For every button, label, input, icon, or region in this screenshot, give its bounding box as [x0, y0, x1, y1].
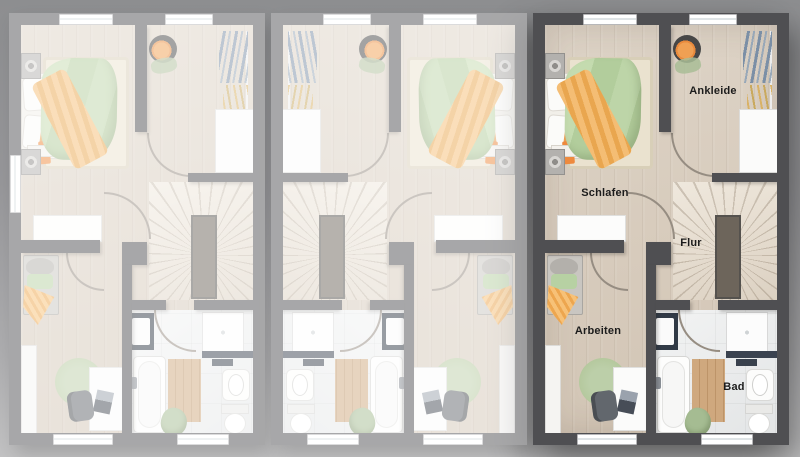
ball-chair [149, 35, 177, 63]
toilet-bowl [748, 413, 770, 433]
floorplan-canvas: Schlafen Ankleide Flur Arbeiten Bad [0, 0, 800, 457]
wall-bad-top-left [656, 300, 690, 310]
shower [202, 312, 244, 353]
unit-inner: Schlafen Ankleide Flur Arbeiten Bad [533, 13, 789, 445]
single-bed [477, 255, 513, 315]
wall-schlafen-arbeiten [545, 240, 624, 253]
door-arc-bad [154, 310, 196, 352]
bedroom-rug [407, 57, 493, 169]
unit-right[interactable]: Schlafen Ankleide Flur Arbeiten Bad [533, 13, 789, 445]
door-arc-arbeiten [590, 253, 628, 291]
hanging-clothes-yellow [288, 85, 313, 133]
single-bed-pillow [550, 258, 578, 275]
wall-bad-top-right [718, 300, 777, 310]
hand-basin [286, 369, 314, 401]
shower [726, 312, 768, 353]
single-bed-green-pillow [551, 274, 577, 289]
wall-schlafen-ankleide [659, 25, 671, 132]
nightstand [21, 53, 41, 79]
stairwell-opening [191, 215, 217, 299]
single-bed-pillow [482, 258, 510, 275]
wall-schlafen-arbeiten [21, 240, 100, 253]
orange-cushion [39, 84, 54, 112]
towel-shelf [212, 359, 233, 366]
towel-shelf [303, 359, 324, 366]
shower-glass-panel [726, 351, 777, 358]
wall-hall-stub [646, 242, 671, 265]
door-arc-arbeiten [66, 253, 104, 291]
workroom-sideboard [545, 345, 561, 433]
vanity-sink [656, 318, 674, 345]
round-green-rug [433, 358, 481, 406]
wall-schlafen-arbeiten [436, 240, 515, 253]
double-bed-mattress [21, 73, 61, 159]
window [53, 434, 113, 445]
room-label-arbeiten: Arbeiten [575, 325, 621, 337]
round-green-rug [55, 358, 103, 406]
window [689, 14, 737, 25]
door-arc-schlafen [104, 192, 151, 239]
wardrobe-cabinet [739, 109, 777, 173]
nightstand [495, 53, 515, 79]
stairwell-opening [715, 215, 741, 299]
bedroom-sideboard [434, 215, 503, 242]
bed-pillow [490, 114, 515, 150]
laptop-icon [422, 389, 443, 414]
door-arc-schlafen [385, 192, 432, 239]
toilet-bowl [290, 413, 312, 433]
bathtub-faucet [131, 377, 137, 389]
vanity-sink [132, 318, 150, 345]
bed-footboard [479, 145, 509, 157]
window [423, 14, 477, 25]
room-label-schlafen: Schlafen [581, 187, 628, 199]
orange-cushion [483, 84, 498, 112]
wall-bad-top-right [194, 300, 253, 310]
single-bed [23, 255, 59, 315]
window [165, 14, 213, 25]
towel-shelf [736, 359, 757, 366]
unit-interior [283, 25, 515, 433]
unit-middle[interactable] [271, 13, 527, 445]
unit-interior [21, 25, 253, 433]
bathroom-tile-floor [132, 310, 253, 433]
toilet-bowl [224, 413, 246, 433]
bathroom-tile-floor [283, 310, 404, 433]
desk-chair [66, 389, 95, 422]
stairwell-opening [319, 215, 345, 299]
room-label-flur: Flur [680, 237, 702, 249]
unit-inner [271, 13, 527, 445]
door-arc-bad [340, 310, 382, 352]
orange-accent-cushion [485, 141, 498, 165]
vanity-sink [386, 318, 404, 345]
winder-staircase [283, 182, 387, 300]
desk [411, 367, 447, 431]
bed-pillow [22, 76, 46, 111]
hanging-clothes-blue [288, 31, 317, 83]
shower [292, 312, 334, 353]
shower-glass-panel [202, 351, 253, 358]
hanging-clothes-yellow [223, 85, 248, 133]
unit-inner [9, 13, 265, 445]
window [423, 434, 483, 445]
green-towel [345, 404, 379, 433]
washbasin-vanity [128, 313, 154, 350]
workroom-sideboard [21, 345, 37, 433]
hand-basin [746, 369, 774, 401]
unit-interior: Schlafen Ankleide Flur Arbeiten Bad [545, 25, 777, 433]
bed-pillow [490, 76, 514, 111]
window [323, 14, 371, 25]
wall-schlafen-ankleide [135, 25, 147, 132]
ball-chair [359, 35, 387, 63]
window [701, 434, 753, 445]
bed-pillow [22, 114, 47, 150]
bedroom-rug [43, 57, 129, 169]
wardrobe-cabinet [283, 109, 321, 173]
room-label-bad: Bad [723, 381, 744, 393]
single-bed-pillow [26, 258, 54, 275]
wall-schlafen-ankleide [389, 25, 401, 132]
window [583, 14, 637, 25]
bedroom-sideboard [33, 215, 102, 242]
orange-throw-blanket [427, 68, 506, 171]
window [177, 434, 229, 445]
window [307, 434, 359, 445]
shower-glass-panel [283, 351, 334, 358]
workroom-sideboard [499, 345, 515, 433]
door-arc-ankleide [671, 133, 715, 177]
wooden-bath-mat [335, 359, 368, 422]
winder-staircase [149, 182, 253, 300]
door-arc-schlafen [628, 192, 675, 239]
window [10, 155, 21, 213]
hanging-clothes-blue [743, 31, 772, 83]
room-label-ankleide: Ankleide [689, 85, 736, 97]
double-bed-mattress [475, 73, 515, 159]
wall-ankleide-stairs [188, 173, 253, 182]
wooden-bath-mat [168, 359, 201, 422]
orange-cushion [39, 118, 52, 144]
hanging-clothes-blue [219, 31, 248, 83]
door-arc-ankleide [147, 133, 191, 177]
nightstand [545, 149, 565, 175]
hand-basin [222, 369, 250, 401]
toilet-tank [221, 404, 249, 414]
chair-mat [150, 56, 178, 75]
desk [89, 367, 125, 431]
orange-throw-blanket [31, 68, 110, 171]
washbasin-vanity [382, 313, 408, 350]
single-bed-orange-blanket [23, 285, 56, 325]
clothes-rail [288, 31, 290, 137]
chair-mat [358, 56, 386, 75]
green-duvet [418, 57, 496, 160]
orange-cushion [483, 118, 496, 144]
green-towel [157, 404, 191, 433]
window [59, 14, 113, 25]
wall-ankleide-stairs [283, 173, 348, 182]
desk-chair [590, 389, 619, 422]
wall-ankleide-stairs [712, 173, 777, 182]
wardrobe-cabinet [215, 109, 253, 173]
unit-left[interactable] [9, 13, 265, 445]
green-duvet [40, 57, 118, 160]
clothes-rail [246, 31, 248, 137]
door-arc-ankleide [345, 133, 389, 177]
laptop-icon [93, 389, 114, 414]
single-bed-orange-blanket [480, 285, 513, 325]
wall-bad-top-left [370, 300, 404, 310]
bathtub-faucet [399, 377, 405, 389]
bathtub [370, 356, 403, 433]
nightstand [495, 149, 515, 175]
wall-hall-stub [389, 242, 414, 265]
bed-footboard [27, 145, 57, 157]
wall-arbeiten-bad [122, 265, 132, 433]
door-arc-arbeiten [432, 253, 470, 291]
desk-chair [441, 389, 470, 422]
nightstand [545, 53, 565, 79]
wall-arbeiten-bad [404, 265, 414, 433]
orange-accent-cushion [38, 141, 51, 165]
wall-bad-top-left [132, 300, 166, 310]
single-bed-green-pillow [483, 274, 509, 289]
single-bed-green-pillow [27, 274, 53, 289]
bedroom-sideboard [557, 215, 626, 242]
toilet-tank [287, 404, 315, 414]
wall-arbeiten-bad [646, 265, 656, 433]
wall-bad-top-right [283, 300, 342, 310]
window [577, 434, 637, 445]
wall-hall-stub [122, 242, 147, 265]
bathtub [133, 356, 166, 433]
nightstand [21, 149, 41, 175]
